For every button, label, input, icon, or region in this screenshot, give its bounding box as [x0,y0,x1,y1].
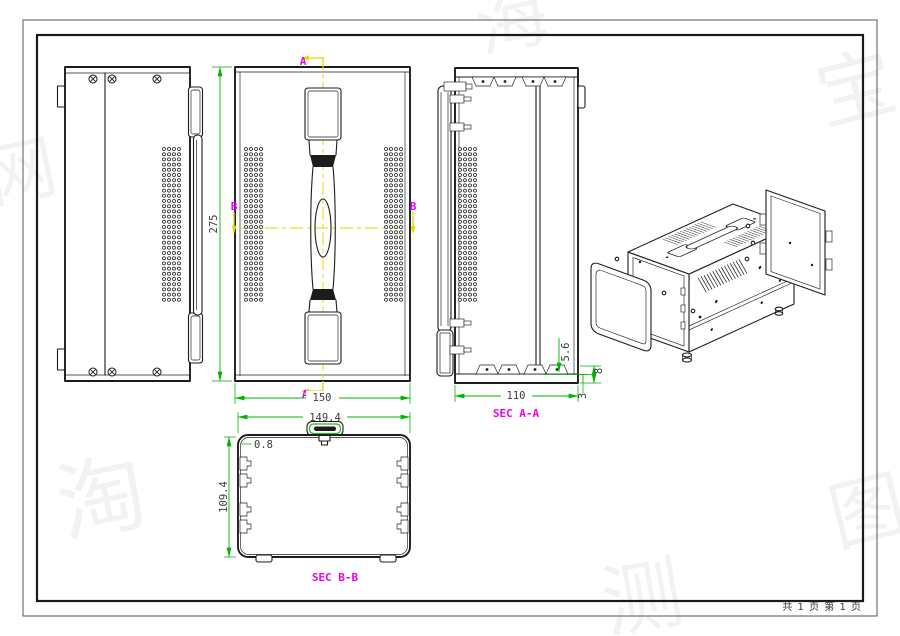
dim-front-height: 275 [208,67,232,381]
secbb-foot-right [380,555,396,562]
secbb-body [238,435,410,557]
dim-text-149-4: 149.4 [309,412,341,424]
watermark-glyph: 宝 [807,37,900,141]
watermark-glyph: 网 [0,127,64,218]
secaa-side-tab [578,86,585,108]
dim-text-150: 150 [313,392,332,404]
handle-bracket-bottom [189,313,203,363]
drawing-sheet: 海 宝 淘 测 图 样 网 共 1 页 第 1 页 [0,0,900,636]
dim-secaa-width: 110 [455,385,578,402]
handle-bar-side [194,135,203,315]
drawing-canvas: 海 宝 淘 测 图 样 网 共 1 页 第 1 页 [0,0,900,636]
dim-text-275: 275 [208,215,220,234]
label-sec-aa: SEC A-A [493,407,540,420]
cut-arrow [411,226,416,234]
watermark-glyph: 淘 [48,441,155,556]
dim-text-110: 110 [507,390,526,402]
label-section-a-top: A [300,55,307,68]
label-sec-bb: SEC B-B [312,571,359,584]
view-sec-bb: 149.4 109.4 0.8 SEC B-B [218,411,410,584]
side-tab-bottom [58,349,66,370]
dim-text-8: 8 [593,368,605,374]
side-tab-top [58,86,66,107]
label-section-b-left: B [231,200,238,213]
watermark-glyph: 测 [595,547,689,636]
dim-secbb-height: 109.4 [218,437,236,557]
dim-text-5-6: 5.6 [560,343,572,362]
secaa-body [455,68,578,383]
view-isometric [591,190,832,362]
handle-bracket-top [189,87,203,137]
secbb-foot-left [256,555,272,562]
view-sec-aa: 110 5.6 8 3 SEC A-A [437,68,605,420]
dim-text-109-4: 109.4 [218,481,230,513]
page-footer: 共 1 页 第 1 页 [782,600,862,613]
dim-text-0-8: 0.8 [254,439,273,451]
view-front: A A B B 275 150 [208,55,417,404]
view-side [58,67,203,381]
watermark-glyph: 图 [820,462,900,563]
dim-text-3: 3 [577,393,589,399]
side-body [65,67,190,381]
label-section-b-right: B [410,200,417,213]
